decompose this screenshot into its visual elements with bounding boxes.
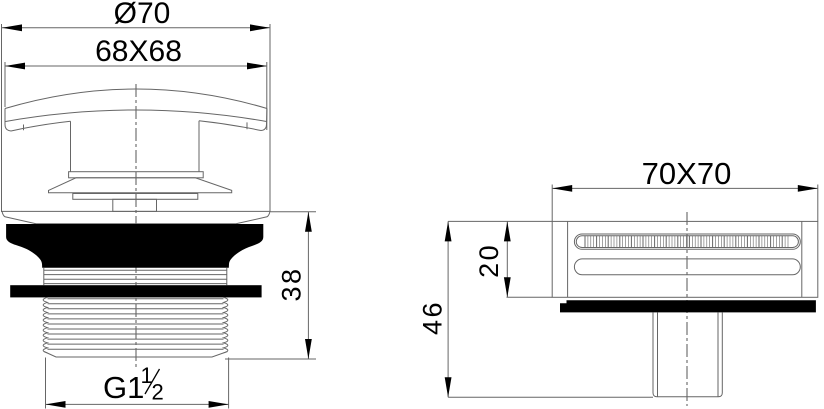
- svg-text:20: 20: [474, 243, 504, 278]
- svg-text:38: 38: [276, 266, 306, 301]
- svg-text:Ø70: Ø70: [114, 0, 171, 30]
- svg-text:G1: G1: [103, 370, 144, 405]
- svg-text:68X68: 68X68: [95, 35, 182, 68]
- svg-text:70X70: 70X70: [642, 156, 732, 191]
- svg-text:2: 2: [152, 380, 164, 405]
- svg-text:46: 46: [417, 300, 447, 335]
